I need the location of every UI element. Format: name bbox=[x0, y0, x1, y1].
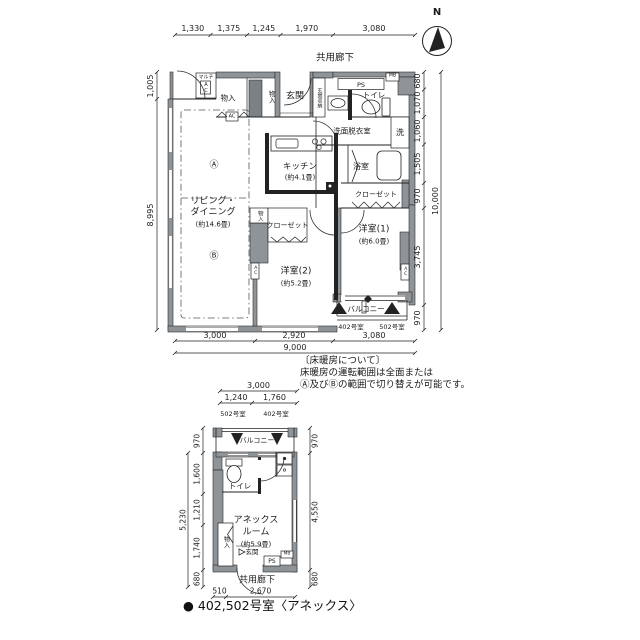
main-laundry-label: 洗 bbox=[396, 129, 404, 137]
main-entrance-label: 玄関 bbox=[286, 93, 304, 102]
dim-main-bottom-1: 2,920 bbox=[283, 332, 306, 340]
main-toilet-label: トイレ bbox=[363, 91, 386, 99]
main-unit402-label: 402号室 bbox=[338, 324, 363, 331]
main-kitchen-size: (約4.1畳) bbox=[285, 175, 316, 182]
dim-main-right-0: 680 bbox=[414, 73, 422, 88]
dim-main-right-3: 1,505 bbox=[414, 152, 422, 175]
main-ac1-label: AC bbox=[253, 266, 258, 276]
dim-annex-left-3: 1,740 bbox=[193, 537, 201, 558]
main-bedroom1-size: (約6.0畳) bbox=[359, 239, 390, 246]
main-closet2-label: クローゼット bbox=[267, 223, 309, 230]
dim-main-bottom-2: 3,080 bbox=[363, 332, 386, 340]
dim-annex-right-0: 970 bbox=[311, 433, 319, 447]
note-line-2: 床暖房の運転範囲は全面または bbox=[300, 368, 433, 378]
main-storage2-label: 物入 bbox=[268, 91, 275, 104]
annex-sink-dot bbox=[283, 457, 286, 460]
main-bedroom1-label: 洋室(1) bbox=[359, 226, 390, 235]
north-label: N bbox=[433, 8, 441, 18]
dim-main-right-4: 970 bbox=[414, 188, 422, 203]
main-ac3-label: AC bbox=[229, 114, 236, 119]
north-arrow bbox=[423, 27, 452, 56]
annex-entrance-label: 玄関 bbox=[246, 549, 259, 556]
main-closet1-label: クローゼット bbox=[355, 192, 397, 199]
kitchen-corner-dot bbox=[329, 185, 332, 188]
dim-annex-bottom-1: 2,670 bbox=[250, 587, 271, 595]
floorplan-page: 共用廊下 N 1,330 1,375 1,245 1,970 3,080 1,0… bbox=[0, 0, 640, 640]
dim-main-top-3: 1,970 bbox=[295, 25, 318, 33]
annex-black-walls bbox=[258, 457, 261, 494]
annex-room-label-1: アネックス bbox=[234, 517, 279, 526]
annex-corridor-label: 共用廊下 bbox=[239, 577, 275, 586]
annex-storage-label: 物入 bbox=[223, 536, 229, 548]
main-bedroom2-label: 洋室(2) bbox=[281, 268, 312, 277]
annex-toilet-bowl bbox=[227, 466, 241, 483]
dim-annex-left-2: 1,210 bbox=[193, 499, 201, 520]
main-storage3-label: 物入 bbox=[256, 210, 262, 221]
dim-main-top-0: 1,330 bbox=[181, 25, 204, 33]
main-living-label-1: リビング・ bbox=[190, 198, 235, 207]
dim-annex-left-total: 5,230 bbox=[179, 509, 187, 530]
zone-a-marker: Ⓐ bbox=[209, 162, 218, 171]
main-balcony-label: バルコニー bbox=[347, 305, 384, 313]
annex-mb-label: MB bbox=[283, 552, 290, 557]
kitchen-fixtures bbox=[271, 136, 332, 151]
dim-main-left-0: 1,005 bbox=[147, 74, 155, 97]
dim-main-right-1: 1,070 bbox=[414, 92, 422, 115]
note-line-1: 〔床暖房について〕 bbox=[300, 356, 385, 366]
dim-main-right-5: 3,745 bbox=[414, 245, 422, 268]
main-corridor-label: 共用廊下 bbox=[316, 53, 354, 63]
annex-unit502-label: 502号室 bbox=[220, 410, 245, 417]
dim-main-top-4: 3,080 bbox=[363, 25, 386, 33]
main-unit502-label: 502号室 bbox=[379, 324, 404, 331]
dim-main-right-total: 10,000 bbox=[432, 187, 440, 215]
dim-annex-left-1: 1,600 bbox=[193, 463, 201, 484]
annex-ps-label: PS bbox=[268, 559, 275, 565]
main-multi-ac-unit-label: AC bbox=[203, 82, 208, 94]
main-bedroom2-size: (約5.2畳) bbox=[281, 281, 312, 288]
main-storage1-label: 物入 bbox=[221, 94, 236, 102]
main-bath-label: 浴室 bbox=[353, 163, 369, 171]
dim-main-right-6: 970 bbox=[414, 310, 422, 325]
main-living-label-2: ダイニング bbox=[190, 209, 235, 218]
annex-unit402-label: 402号室 bbox=[263, 410, 288, 417]
dim-main-top-1: 1,375 bbox=[217, 25, 240, 33]
annex-arcs bbox=[237, 457, 284, 594]
dim-main-left-1: 8,995 bbox=[147, 203, 155, 226]
dim-annex-top-1: 1,760 bbox=[263, 394, 286, 402]
annex-toilet-label: トイレ bbox=[229, 482, 252, 490]
dim-annex-top-total: 3,000 bbox=[247, 382, 270, 390]
main-multi-ac-label: マルチ bbox=[198, 75, 213, 80]
dim-annex-right-2: 680 bbox=[311, 571, 319, 585]
main-entrance-storage-label: 玄関収納 bbox=[317, 88, 322, 108]
annex-entrance-marker bbox=[239, 549, 245, 555]
zone-b-marker: Ⓑ bbox=[209, 253, 218, 262]
main-washroom-label: 洗面脱衣室 bbox=[333, 127, 371, 135]
main-living-size: (約14.6畳) bbox=[195, 222, 230, 229]
annex-room-label-2: ルーム bbox=[243, 529, 270, 538]
plan-caption: ● 402,502号室〈アネックス〉 bbox=[183, 600, 362, 613]
annex-balcony-label: バルコニー bbox=[240, 438, 275, 445]
dim-annex-left-4: 680 bbox=[193, 571, 201, 585]
note-line-3: Ⓐ及びⒷの範囲で切り替えが可能です。 bbox=[300, 380, 470, 390]
main-kitchen-label: キッチン bbox=[283, 163, 317, 172]
main-mb-label: MB bbox=[389, 75, 396, 80]
dim-main-bottom-0: 3,000 bbox=[204, 332, 227, 340]
dim-main-right-2: 1,060 bbox=[414, 119, 422, 142]
dim-annex-left-0: 970 bbox=[193, 433, 201, 447]
dim-annex-right-1: 4,550 bbox=[311, 501, 319, 522]
main-ac2-label: AC bbox=[403, 267, 408, 277]
dim-main-bottom-total: 9,000 bbox=[284, 344, 307, 352]
dim-main-top-2: 1,245 bbox=[252, 25, 275, 33]
dim-annex-bottom-0: 510 bbox=[212, 587, 226, 595]
main-ps-label: PS bbox=[357, 81, 365, 88]
dim-annex-top-0: 1,240 bbox=[225, 394, 248, 402]
